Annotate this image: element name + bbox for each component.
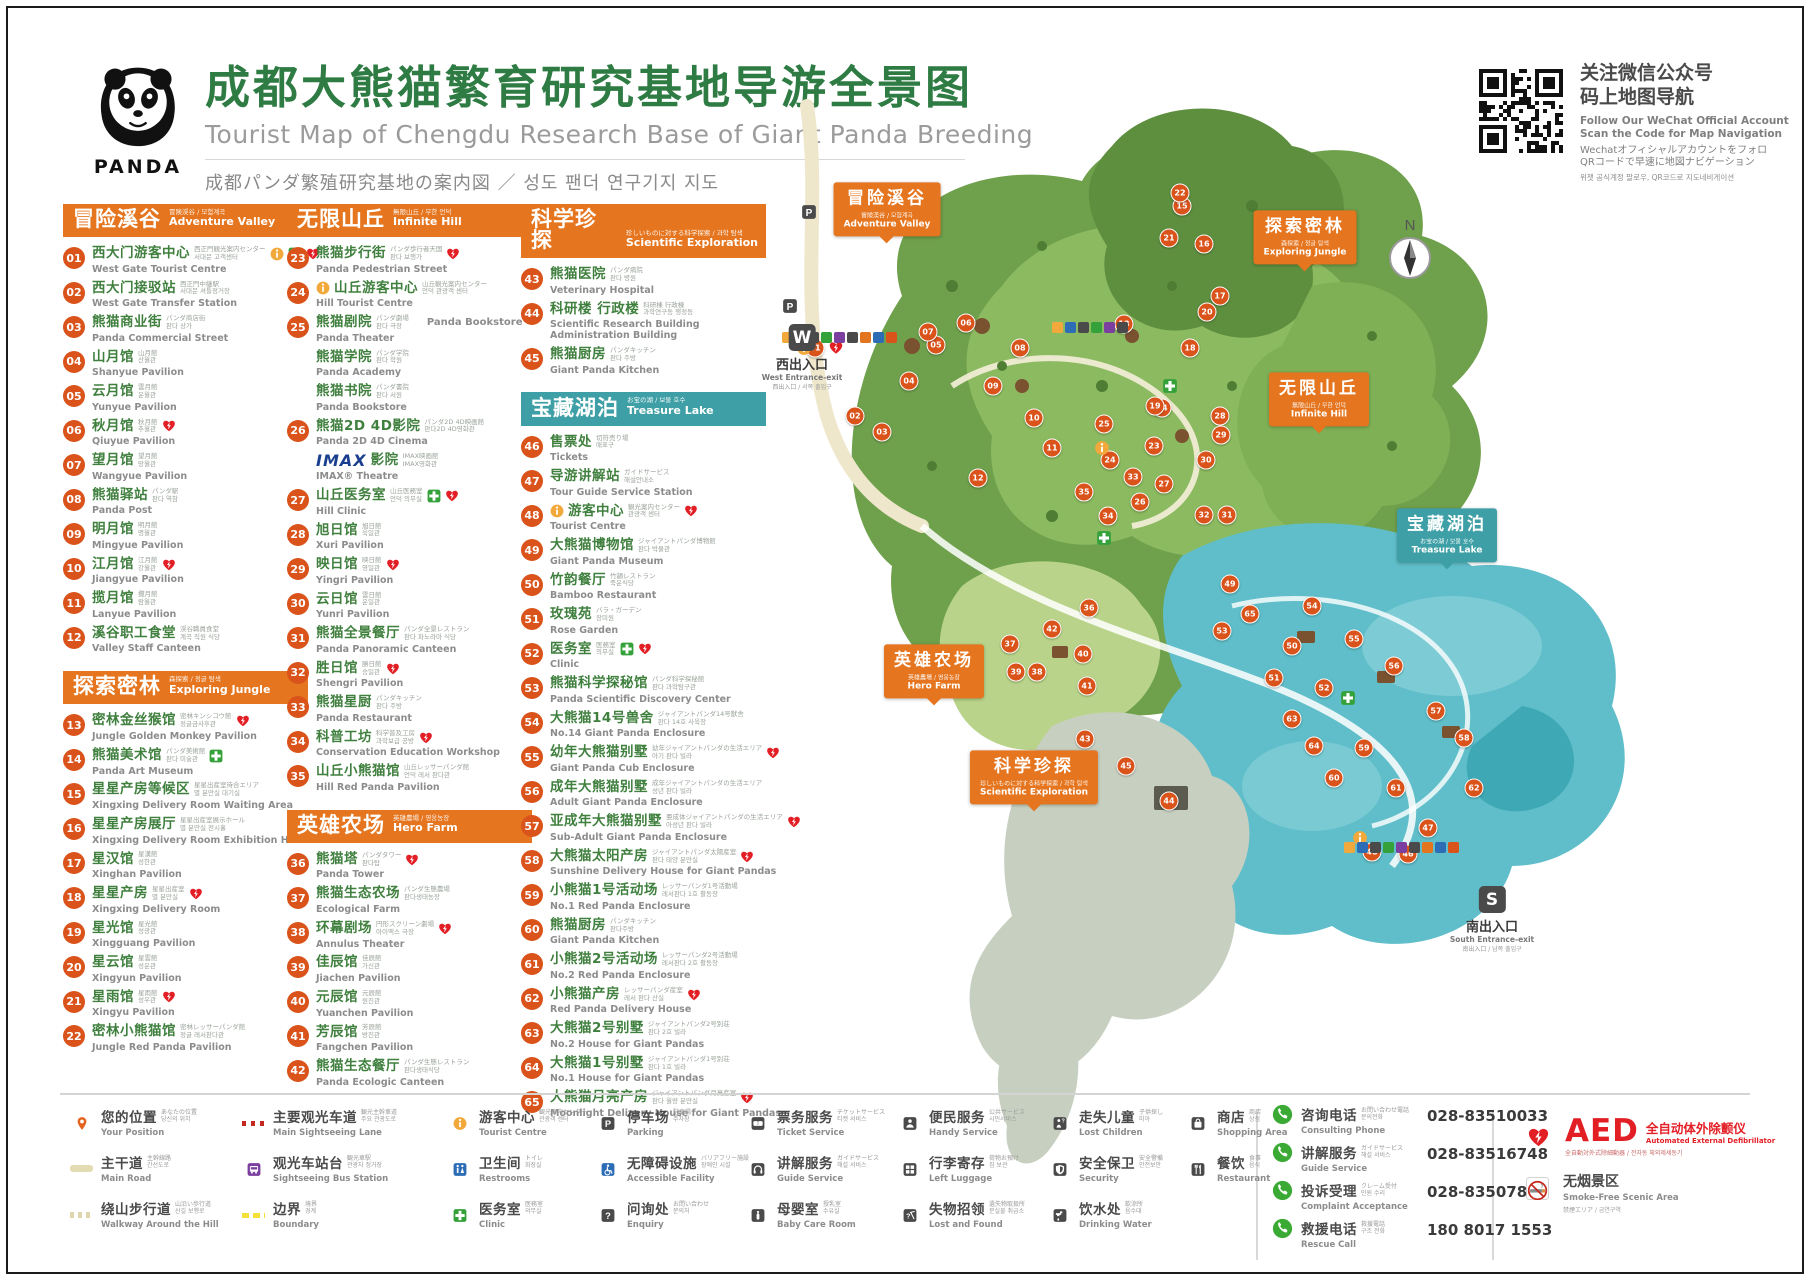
item-name-cn: 星云馆 — [92, 956, 134, 970]
aed-icon — [445, 489, 459, 503]
key-sub: バリアフリー施設장애인 시설 — [701, 1155, 749, 1169]
legend-item-50: 50 竹韵餐厅竹韻レストラン죽운식당 Bamboo Restaurant — [521, 573, 766, 603]
item-name-en: Red Panda Delivery House — [550, 1005, 701, 1016]
aed-en: Automated External Defibrillator — [1646, 1137, 1775, 1145]
firstaid-icon — [453, 1204, 467, 1218]
callout-cn: 英雄农场 — [894, 650, 974, 670]
item-name-cn: 密林金丝猴馆 — [92, 714, 176, 728]
item-name-en: Panda Panoramic Canteen — [316, 645, 469, 656]
item-name-sub: ジャイアントパンダ太陽産室판다 태양 분만실 — [652, 849, 736, 865]
callout-en: Exploring Jungle — [1264, 247, 1347, 257]
item-name-sub: 攬月館람월관 — [138, 591, 158, 607]
callout-en: Treasure Lake — [1407, 545, 1487, 555]
item-name-en: Hill Clinic — [316, 507, 459, 518]
item-name-sub: パンダ科学探秘館판다 과학탐구관 — [652, 676, 704, 692]
item-name-en: Valley Staff Canteen — [92, 644, 220, 655]
key-en: Baby Care Room — [777, 1220, 856, 1230]
key-en: Enquiry — [627, 1220, 709, 1230]
item-name-cn: 熊猫商业街 — [92, 316, 162, 330]
item-name-cn: 胜日馆 — [316, 662, 358, 676]
key-en: Lost Children — [1079, 1128, 1163, 1138]
item-name-en: Panda Scientific Discovery Center — [550, 695, 731, 706]
item-name-sub: 星星出産室待合エリア별 분만실 대기실 — [194, 782, 259, 798]
item-name-cn: 西大门接驳站 — [92, 282, 176, 296]
map-marker-54: 54 — [1303, 597, 1322, 616]
item-name-cn: 星汉馆 — [92, 853, 134, 867]
key-info: 游客中心 観光案内センター관광객 센터 Tourist Centre — [448, 1106, 596, 1143]
info-icon — [270, 247, 284, 261]
item-number: 32 — [287, 662, 309, 684]
item-name-en: Panda 2D 4D Cinema — [316, 437, 484, 448]
item-number: 61 — [521, 953, 543, 975]
aed-sub: 全自動対外式除細動器 / 전자동 체외제세동기 — [1565, 1148, 1775, 1157]
item-number: 62 — [521, 988, 543, 1010]
entrance-sub: 西出入口 / 서쪽 출입구 — [762, 382, 843, 391]
ticket-icon — [751, 1112, 765, 1126]
legend-item-62: 62 小熊猫产房レッサーパンダ産室레서 판다 산실 Red Panda Deli… — [521, 987, 766, 1017]
legend-item-32: 32 胜日馆勝日館승일관 Shengri Pavilion — [287, 661, 532, 691]
item-name-cn: 望月馆 — [92, 454, 134, 468]
item-name-sub: パンダ書院판다 서원 — [376, 384, 409, 400]
item-number: 04 — [63, 351, 85, 373]
item-name-cn: 元辰馆 — [316, 991, 358, 1005]
map-marker-12: 12 — [969, 469, 988, 488]
legend-item-54: 54 大熊猫14号兽舍ジャイアントパンダ14号獣舎판다 14호 사육장 No.1… — [521, 711, 766, 741]
item-name-sub: パンダタワー판다탑 — [362, 852, 401, 868]
item-name-sub: レッサーパンダ産室레서 판다 산실 — [624, 987, 683, 1003]
key-firstaid: 医务室 医務室의무실 Clinic — [448, 1198, 596, 1235]
legend-item-05: 05 云月馆雲月館운월관 Yunyue Pavilion — [63, 384, 308, 414]
item-name-sub: 勝日館승일관 — [362, 661, 382, 677]
key-cn: 无障碍设施 — [627, 1152, 697, 1172]
item-name-cn: 溪谷职工食堂 — [92, 627, 176, 641]
key-cn: 游客中心 — [479, 1106, 535, 1126]
item-name-cn: 熊猫科学探秘馆 — [550, 677, 648, 691]
item-name-sub: 竹韻レストラン죽운식당 — [610, 573, 656, 589]
item-name-en: No.1 House for Giant Pandas — [550, 1074, 730, 1085]
item-name-sub: 西正門観光案内センター서대문 고객센터 — [194, 246, 266, 262]
key-cn: 饮水处 — [1079, 1198, 1121, 1218]
item-name-sub: レッサーパンダ1号活動場레서판다 1호 활동장 — [662, 883, 738, 899]
legend-item-30: 30 云日馆雲日館운일관 Yunri Pavilion — [287, 592, 532, 622]
legend-item-17: 17 星汉馆星漢館성한관 Xinghan Pavilion — [63, 851, 308, 881]
item-name-sub: パンダ歩行者天国판다 보행가 — [390, 246, 442, 262]
key-en: Guide Service — [777, 1174, 879, 1184]
map-info-badge — [1095, 441, 1110, 456]
phone-rescue-call: 救援电话救援電話구조 전화 Rescue Call 180 8017 1553 — [1272, 1218, 1552, 1250]
item-name-sub: 科学普及工房과학보급 공방 — [376, 730, 415, 746]
zone-name-en: Scientific Exploration — [626, 237, 758, 250]
item-number: 44 — [521, 303, 543, 325]
entrance-badge-S: S — [1479, 886, 1506, 913]
item-name-en: Conservation Education Workshop — [316, 748, 500, 759]
key-sub: 荷物お預け짐 보관 — [989, 1155, 1019, 1169]
item-name-en: No.2 House for Giant Pandas — [550, 1040, 730, 1051]
item-number: 22 — [63, 1025, 85, 1047]
item-number: 15 — [63, 783, 85, 805]
key-group-5: 票务服务 チケットサービス티켓 서비스 Ticket Service 讲解服务 … — [746, 1106, 898, 1235]
map-marker-08: 08 — [1011, 339, 1030, 358]
walk-symbol — [70, 1212, 93, 1218]
item-number: 47 — [521, 470, 543, 492]
key-cn: 安全保卫 — [1079, 1152, 1135, 1172]
svg-text:?: ? — [906, 1213, 910, 1220]
item-name-en: Panda Tower — [316, 870, 419, 881]
logo-wordmark: PANDA — [88, 156, 188, 178]
item-name-en: Yunyue Pavilion — [92, 403, 177, 414]
legend-item-60: 60 熊猫厨房パンダキッチン판다주방 Giant Panda Kitchen — [521, 918, 766, 948]
map-marker-57: 57 — [1427, 702, 1446, 721]
zone-name-en: Treasure Lake — [627, 405, 714, 418]
item-name-cn: 大熊猫2号别墅 — [550, 1022, 644, 1036]
entrance-cn: 南出入口 — [1450, 916, 1534, 935]
item-name-en: Bamboo Restaurant — [550, 591, 656, 602]
compass: N — [1387, 216, 1433, 290]
panda-logo: PANDA — [88, 58, 188, 178]
legend-item-09: 09 明月馆明月館명월관 Mingyue Pavilion — [63, 522, 308, 552]
key-cn: 讲解服务 — [777, 1152, 833, 1172]
legend-item-56: 56 成年大熊猫别墅成年ジャイアントパンダの生活エリア성년 판다 빌라 Adul… — [521, 780, 766, 810]
item-name-cn: 医务室 — [550, 643, 592, 657]
aed-icon — [236, 714, 250, 728]
phone-guide-service: 讲解服务ガイドサービス해설 서비스 Guide Service 028-8351… — [1272, 1142, 1552, 1174]
legend-item-46: 46 售票处切符売り場매표구 Tickets — [521, 435, 766, 465]
panda-logo-icon — [90, 58, 186, 150]
item-name-sub: 円形スクリーン劇場아이맥스 극장 — [376, 921, 434, 937]
item-number: 45 — [521, 348, 543, 370]
item-name-en: No.2 Red Panda Enclosure — [550, 971, 738, 982]
aed-icon — [189, 887, 203, 901]
item-name-en: Panda Theater — [316, 334, 522, 345]
key-baby: 母婴室 授乳室수유실 Baby Care Room — [746, 1198, 898, 1235]
item-number: 02 — [63, 282, 85, 304]
item-name-sub: 科研棟 行政棟과학연구동 행정동 — [643, 302, 693, 318]
item-name-cn: 大熊猫太阳产房 — [550, 850, 648, 864]
item-number: 33 — [287, 696, 309, 718]
item-name-en: Jiangyue Pavilion — [92, 575, 184, 586]
zone-callout: 探索密林 森探索 / 정글 탐색 Exploring Jungle — [1254, 210, 1357, 264]
shop-icon — [1191, 1112, 1205, 1126]
legend-item-26: 26 熊猫2D 4D影院パンダ2D 4D映画館판다2D 4D영화관 Panda … — [287, 419, 532, 449]
item-name-sub: ジャイアントパンダ2号別荘판다 2호 빌라 — [648, 1021, 730, 1037]
legend-item-10: 10 江月馆江月館강월관 Jiangyue Pavilion — [63, 557, 308, 587]
bus-icon — [247, 1158, 261, 1172]
item-name-en: Sunshine Delivery House for Giant Pandas — [550, 867, 776, 878]
item-name-sub: パンダキッチン판다 주방 — [376, 695, 422, 711]
item-number: 18 — [63, 887, 85, 909]
zone-name-cn: 冒险溪谷 — [73, 209, 161, 230]
aed-heart-icon — [1520, 1119, 1556, 1155]
item-name-en: Shengri Pavilion — [316, 679, 403, 690]
legend-item-01: 01 西大门游客中心西正門観光案内センター서대문 고객센터 West Gate … — [63, 246, 308, 276]
legend-item-39: 39 佳辰馆佳辰館가신관 Jiachen Pavilion — [287, 955, 532, 985]
item-name-cn: 山丘游客中心 — [334, 282, 418, 296]
item-name-sub: パンダ2D 4D映画館판다2D 4D영화관 — [424, 419, 484, 435]
key-cn: 绕山步行道 — [101, 1198, 171, 1218]
key-security: 安全保卫 安全警備안전보안 Security — [1048, 1152, 1186, 1189]
legend-column-1: 冒险溪谷 冒険渓谷 / 모험계곡 Adventure Valley 01 西大门… — [63, 204, 308, 1070]
key-handy: 便民服务 公共サービス시민서비스 Handy Service — [898, 1106, 1048, 1143]
key-cn: 问询处 — [627, 1198, 669, 1218]
item-name-cn: 成年大熊猫别墅 — [550, 781, 648, 795]
item-number: 51 — [521, 608, 543, 630]
key-en: Restaurant — [1217, 1174, 1270, 1184]
svg-text:P: P — [806, 208, 813, 219]
item-name-en: Jungle Red Panda Pavilion — [92, 1043, 245, 1054]
key-bus: 观光车站台 観光車駅관광차 정거장 Sightseeing Bus Statio… — [242, 1152, 448, 1189]
legend-item-55: 55 幼年大熊猫别墅幼年ジャイアントパンダの生活エリア아기 판다 빌라 Gian… — [521, 745, 766, 775]
key-wheelchair: 无障碍设施 バリアフリー施設장애인 시설 Accessible Facility — [596, 1152, 746, 1189]
key-en: Parking — [627, 1128, 691, 1138]
legend-item-44: 44 科研楼 行政楼科研棟 行政棟과학연구동 행정동 Scientific Re… — [521, 302, 766, 342]
item-name-cn: 山丘小熊猫馆 — [316, 765, 400, 779]
zone-header-hero: 英雄农场 英雄農場 / 영웅농장 Hero Farm — [287, 810, 532, 843]
map-marker-26: 26 — [1131, 493, 1150, 512]
key-group-7: ? 走失儿童 子供探し미아 Lost Children 安全保卫 安全警備안전보… — [1048, 1106, 1186, 1235]
item-name-cn: 大熊猫1号别墅 — [550, 1057, 644, 1071]
item-name-cn: 熊猫美术馆 — [92, 749, 162, 763]
item-name-sub: 山丘観光案内センター언덕 관광객 센터 — [422, 281, 487, 297]
item-number: 27 — [287, 489, 309, 511]
item-name-sub: IMAX映画館IMAX영화관 — [403, 453, 439, 469]
item-name-cn: 科研楼 行政楼 — [550, 303, 639, 317]
callout-sub: 冒険渓谷 / 모험계곡 — [844, 210, 931, 219]
amenity-strip — [1344, 842, 1459, 853]
item-name-cn: 竹韵餐厅 — [550, 574, 606, 588]
aed-icon — [446, 247, 460, 261]
key-sub: あなたの位置당신의 위치 — [161, 1109, 197, 1123]
item-name-sub: パンダ美術館판다 미술관 — [166, 748, 205, 764]
item-name-en: Xingyun Pavilion — [92, 974, 182, 985]
amenity-strip — [1052, 322, 1128, 333]
aed-icon — [386, 558, 400, 572]
item-number: 03 — [63, 316, 85, 338]
key-cn: 医务室 — [479, 1198, 521, 1218]
map-key: 您的位置 あなたの位置당신의 위치 Your Position 主干道 主幹線路… — [70, 1106, 1278, 1235]
zone-name-sub: 珍しいものに対する科学探索 / 과학 탐색 — [626, 230, 758, 237]
item-name-cn: 小熊猫1号活动场 — [550, 884, 658, 898]
legend-item-35: 35 山丘小熊猫馆山丘レッサーパンダ館언덕 레서 판다관 Hill Red Pa… — [287, 764, 532, 794]
zone-name-en: Adventure Valley — [169, 216, 275, 229]
map-marker-25: 25 — [1095, 415, 1114, 434]
aed-notice: AED 全自动体外除颤仪 Automated External Defibril… — [1520, 1118, 1790, 1214]
item-number: 31 — [287, 627, 309, 649]
item-name-en: Giant Panda Museum — [550, 557, 716, 568]
key-sub: ガイドサービス해설 서비스 — [837, 1155, 879, 1169]
zone-name-cn: 探索密林 — [73, 676, 161, 697]
map-marker-63: 63 — [1283, 710, 1302, 729]
map-marker-03: 03 — [873, 423, 892, 442]
item-number: 25 — [287, 316, 309, 338]
item-name-sub: 元辰館원진관 — [362, 990, 382, 1006]
map-marker-56: 56 — [1385, 657, 1404, 676]
key-sub: 観光主幹車道주요 관광도로 — [361, 1109, 397, 1123]
item-name-sub: 星光館성광관 — [138, 921, 158, 937]
map-marker-20: 20 — [1198, 303, 1217, 322]
item-number: 41 — [287, 1025, 309, 1047]
item-name-en: Scientific Research BuildingAdministrati… — [550, 320, 700, 342]
info-icon — [453, 1112, 467, 1126]
item-name-en: Mingyue Pavilion — [92, 541, 183, 552]
map-marker-52: 52 — [1315, 679, 1334, 698]
item-number: 12 — [63, 627, 85, 649]
item-number: 24 — [287, 282, 309, 304]
legend-item-49: 49 大熊猫博物馆ジャイアントパンダ博物館판다 박물관 Giant Panda … — [521, 538, 766, 568]
callout-en: Infinite Hill — [1279, 409, 1359, 419]
item-number: 08 — [63, 489, 85, 511]
item-name-en: Shanyue Pavilion — [92, 368, 184, 379]
item-name-en: Xingyu Pavilion — [92, 1008, 176, 1019]
legend-item-14: 14 熊猫美术馆パンダ美術館판다 미술관 Panda Art Museum — [63, 748, 308, 778]
item-name-cn: 西大门游客中心 — [92, 247, 190, 261]
svg-text:P: P — [604, 1119, 610, 1129]
item-name-sub: パンダ生態農場판다생태농장 — [404, 886, 450, 902]
item-name-sub: 星星出産室별 분만실 — [152, 886, 185, 902]
aed-icon — [638, 642, 652, 656]
map-marker-42: 42 — [1043, 620, 1062, 639]
legend-item-53: 53 熊猫科学探秘馆パンダ科学探秘館판다 과학탐구관 Panda Scienti… — [521, 676, 766, 706]
map-marker-33: 33 — [1124, 468, 1143, 487]
aed-icon — [419, 731, 433, 745]
lostfound-icon: ? — [903, 1204, 917, 1218]
callout-sub: 珍しいものに対する科学探索 / 과학 탐색 — [980, 778, 1088, 787]
map-marker-34: 34 — [1099, 507, 1118, 526]
item-number: 11 — [63, 592, 85, 614]
key-cn: 观光车站台 — [273, 1152, 343, 1172]
item-name-en: Ecological Farm — [316, 905, 450, 916]
key-sub: 境界경계 — [305, 1201, 317, 1215]
key-en: Security — [1079, 1174, 1163, 1184]
pin-icon — [75, 1112, 89, 1126]
contact-phones: 咨询电话お問い合わせ電話문의전화 Consulting Phone 028-83… — [1272, 1104, 1552, 1250]
item-name-en: Yingri Pavilion — [316, 576, 400, 587]
map-marker-39: 39 — [1007, 663, 1026, 682]
map-marker-02: 02 — [846, 407, 865, 426]
item-name-en: Qiuyue Pavilion — [92, 437, 176, 448]
zone-header-treasure: 宝藏湖泊 お宝の湖 / 보물 호수 Treasure Lake — [521, 392, 766, 425]
item-number: 49 — [521, 539, 543, 561]
key-cn: 母婴室 — [777, 1198, 819, 1218]
footer-divider — [60, 1093, 1750, 1095]
item-number: 36 — [287, 853, 309, 875]
item-name-cn: 旭日馆 — [316, 524, 358, 538]
item-name-sub: ジャイアントパンダ博物館판다 박물관 — [638, 538, 716, 554]
legend-item-12: 12 溪谷职工食堂渓谷職員食堂계곡 직원 식당 Valley Staff Can… — [63, 626, 308, 656]
key-en: Main Sightseeing Lane — [273, 1128, 397, 1138]
map-marker-64: 64 — [1305, 737, 1324, 756]
legend-item-47: 47 导游讲解站ガイドサービス해설안내소 Tour Guide Service … — [521, 469, 766, 499]
key-cn: 走失儿童 — [1079, 1106, 1135, 1126]
item-number: 05 — [63, 385, 85, 407]
entrance-en: South Entrance-exit — [1450, 935, 1534, 944]
item-number: 57 — [521, 815, 543, 837]
item-name-en: Rose Garden — [550, 626, 642, 637]
key-sub: 観光車駅관광차 정거장 — [347, 1155, 382, 1169]
smoke-free-sub: 禁煙エリア / 금연구역 — [1563, 1205, 1679, 1214]
item-name-sub: パンダ劇場판다 극장 — [376, 315, 409, 331]
svg-text:P: P — [787, 302, 794, 313]
item-name-en: Yuanchen Pavilion — [316, 1009, 413, 1020]
map-marker-51: 51 — [1265, 669, 1284, 688]
legend-item-16: 16 星星产房展厅星星出産室展示ホール별 분만실 전시홀 Xingxing De… — [63, 817, 308, 847]
map-parking-badge: P — [783, 299, 798, 314]
item-name-cn: 熊猫书院 — [316, 385, 372, 399]
zone-callout: 无限山丘 無限山丘 / 무한 언덕 Infinite Hill — [1269, 372, 1369, 426]
item-name-en: Clinic — [550, 660, 652, 671]
svg-text:?: ? — [605, 1211, 611, 1221]
item-name-cn: 秋月馆 — [92, 420, 134, 434]
item-name-sub: パンダ商店街판다 상가 — [166, 315, 205, 331]
callout-sub: お宝の湖 / 보물 호수 — [1407, 536, 1487, 545]
key-group-8: 商店 商店상점 Shopping Area 餐饮 食事음식 Restaurant — [1186, 1106, 1278, 1235]
wc-icon — [453, 1158, 467, 1172]
map-marker-16: 16 — [1195, 235, 1214, 254]
key-sub: 子供探し미아 — [1139, 1109, 1163, 1123]
item-name-en: Xingxing Delivery Room Exhibition Hall — [92, 836, 302, 847]
entrance-cn: 西出入口 — [762, 354, 843, 373]
item-name-sub: ジャイアントパンダ1号別荘판다 1호 빌라 — [648, 1056, 730, 1072]
legend-item-15: 15 星星产房等候区星星出産室待合エリア별 분만실 대기실 Xingxing D… — [63, 782, 308, 812]
item-name-en: Annulus Theater — [316, 940, 452, 951]
item-name-en: Panda Pedestrian Street — [316, 265, 460, 276]
key-en: Drinking Water — [1079, 1220, 1152, 1230]
item-name-en: Hill Tourist Centre — [316, 299, 487, 310]
item-name-en: No.1 Red Panda Enclosure — [550, 902, 738, 913]
item-name-sub: 西正門中継駅서대문 셔틀정거장 — [180, 281, 230, 297]
zone-treasure: 宝藏湖泊 お宝の湖 / 보물 호수 Treasure Lake 46 售票处切符… — [521, 392, 766, 1119]
aed-icon — [162, 419, 176, 433]
key-sub: トイレ화장실 — [525, 1155, 543, 1169]
map-marker-60: 60 — [1325, 769, 1344, 788]
info-icon — [316, 281, 330, 295]
item-name-sub: パンダ学院판다 학원 — [376, 350, 409, 366]
item-number: 29 — [287, 558, 309, 580]
item-name-en: Xingxing Delivery Room — [92, 905, 220, 916]
legend-item-59: 59 小熊猫1号活动场レッサーパンダ1号活動場레서판다 1호 활동장 No.1 … — [521, 883, 766, 913]
entrance-S: S 南出入口 South Entrance-exit 南出入口 / 남쪽 출입구 — [1450, 886, 1534, 953]
item-name-sub: 星星出産室展示ホール별 분만실 전시홀 — [180, 817, 245, 833]
map-marker-47: 47 — [1419, 819, 1438, 838]
item-name-en: West Gate Tourist Centre — [92, 265, 320, 276]
legend-item-22: 22 密林小熊猫馆密林レッサーパンダ館정글 레서판다관 Jungle Red P… — [63, 1024, 308, 1054]
item-name-sub: レッサーパンダ2号活動場레서판다 2호 활동장 — [662, 952, 738, 968]
item-name-cn: 熊猫生态农场 — [316, 887, 400, 901]
map-marker-17: 17 — [1211, 287, 1230, 306]
key-luggage: 行李寄存 荷物お預け짐 보관 Left Luggage — [898, 1152, 1048, 1189]
map-marker-23: 23 — [1145, 437, 1164, 456]
luggage-icon — [903, 1158, 917, 1172]
item-name-en: Giant Panda Cub Enclosure — [550, 764, 780, 775]
map-firstaid-badge — [1097, 531, 1112, 546]
item-name-en: West Gate Transfer Station — [92, 299, 237, 310]
zone-name-cn: 英雄农场 — [297, 815, 385, 836]
key-group-2: 主要观光车道 観光主幹車道주요 관광도로 Main Sightseeing La… — [242, 1106, 448, 1235]
key-en: Boundary — [273, 1220, 319, 1230]
headset-icon — [751, 1158, 765, 1172]
map-marker-38: 38 — [1028, 663, 1047, 682]
map-marker-50: 50 — [1283, 637, 1302, 656]
key-lane: 主要观光车道 観光主幹車道주요 관광도로 Main Sightseeing La… — [242, 1106, 448, 1143]
map-marker-43: 43 — [1076, 730, 1095, 749]
key-en: Walkway Around the Hill — [101, 1220, 219, 1230]
item-name-en: Adult Giant Panda Enclosure — [550, 798, 762, 809]
key-sub: 商店상점 — [1249, 1109, 1261, 1123]
item-number: 50 — [521, 574, 543, 596]
zone-callout: 科学珍探 珍しいものに対する科学探索 / 과학 탐색 Scientific Ex… — [970, 750, 1098, 804]
item-name-sub: 星雲館성운관 — [138, 955, 158, 971]
zone-header-scientific: 科学珍探 珍しいものに対する科学探索 / 과학 탐색 Scientific Ex… — [521, 204, 766, 258]
item-name-sub: 雲月館운월관 — [138, 384, 158, 400]
